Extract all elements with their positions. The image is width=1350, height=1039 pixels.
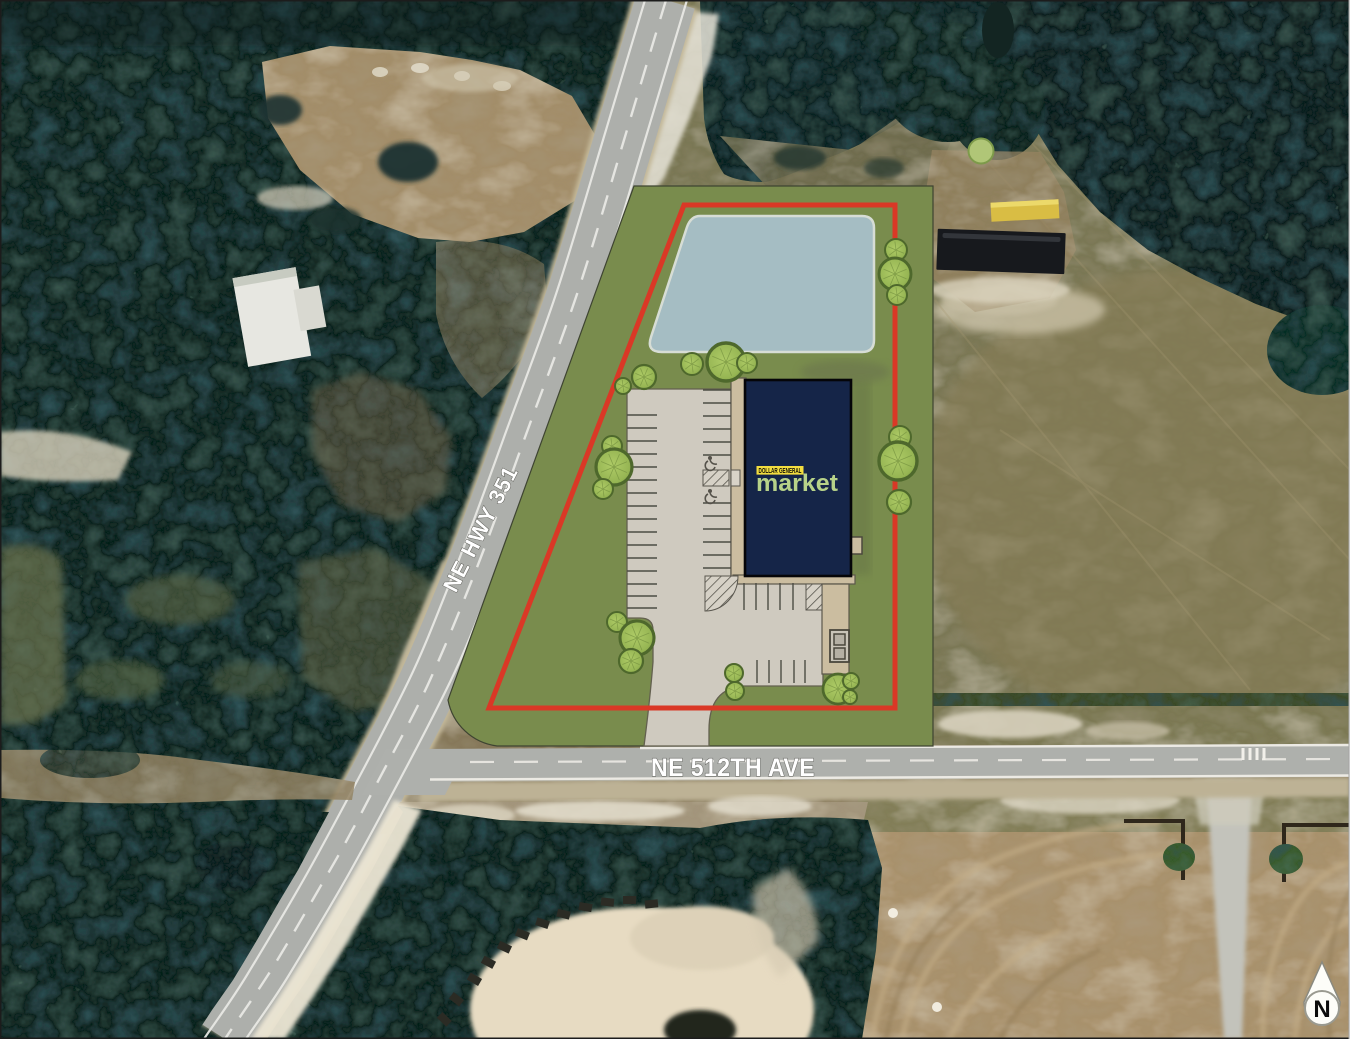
- svg-text:N: N: [1313, 996, 1330, 1023]
- svg-text:NE 512TH AVE: NE 512TH AVE: [651, 754, 815, 782]
- svg-text:market: market: [756, 470, 838, 497]
